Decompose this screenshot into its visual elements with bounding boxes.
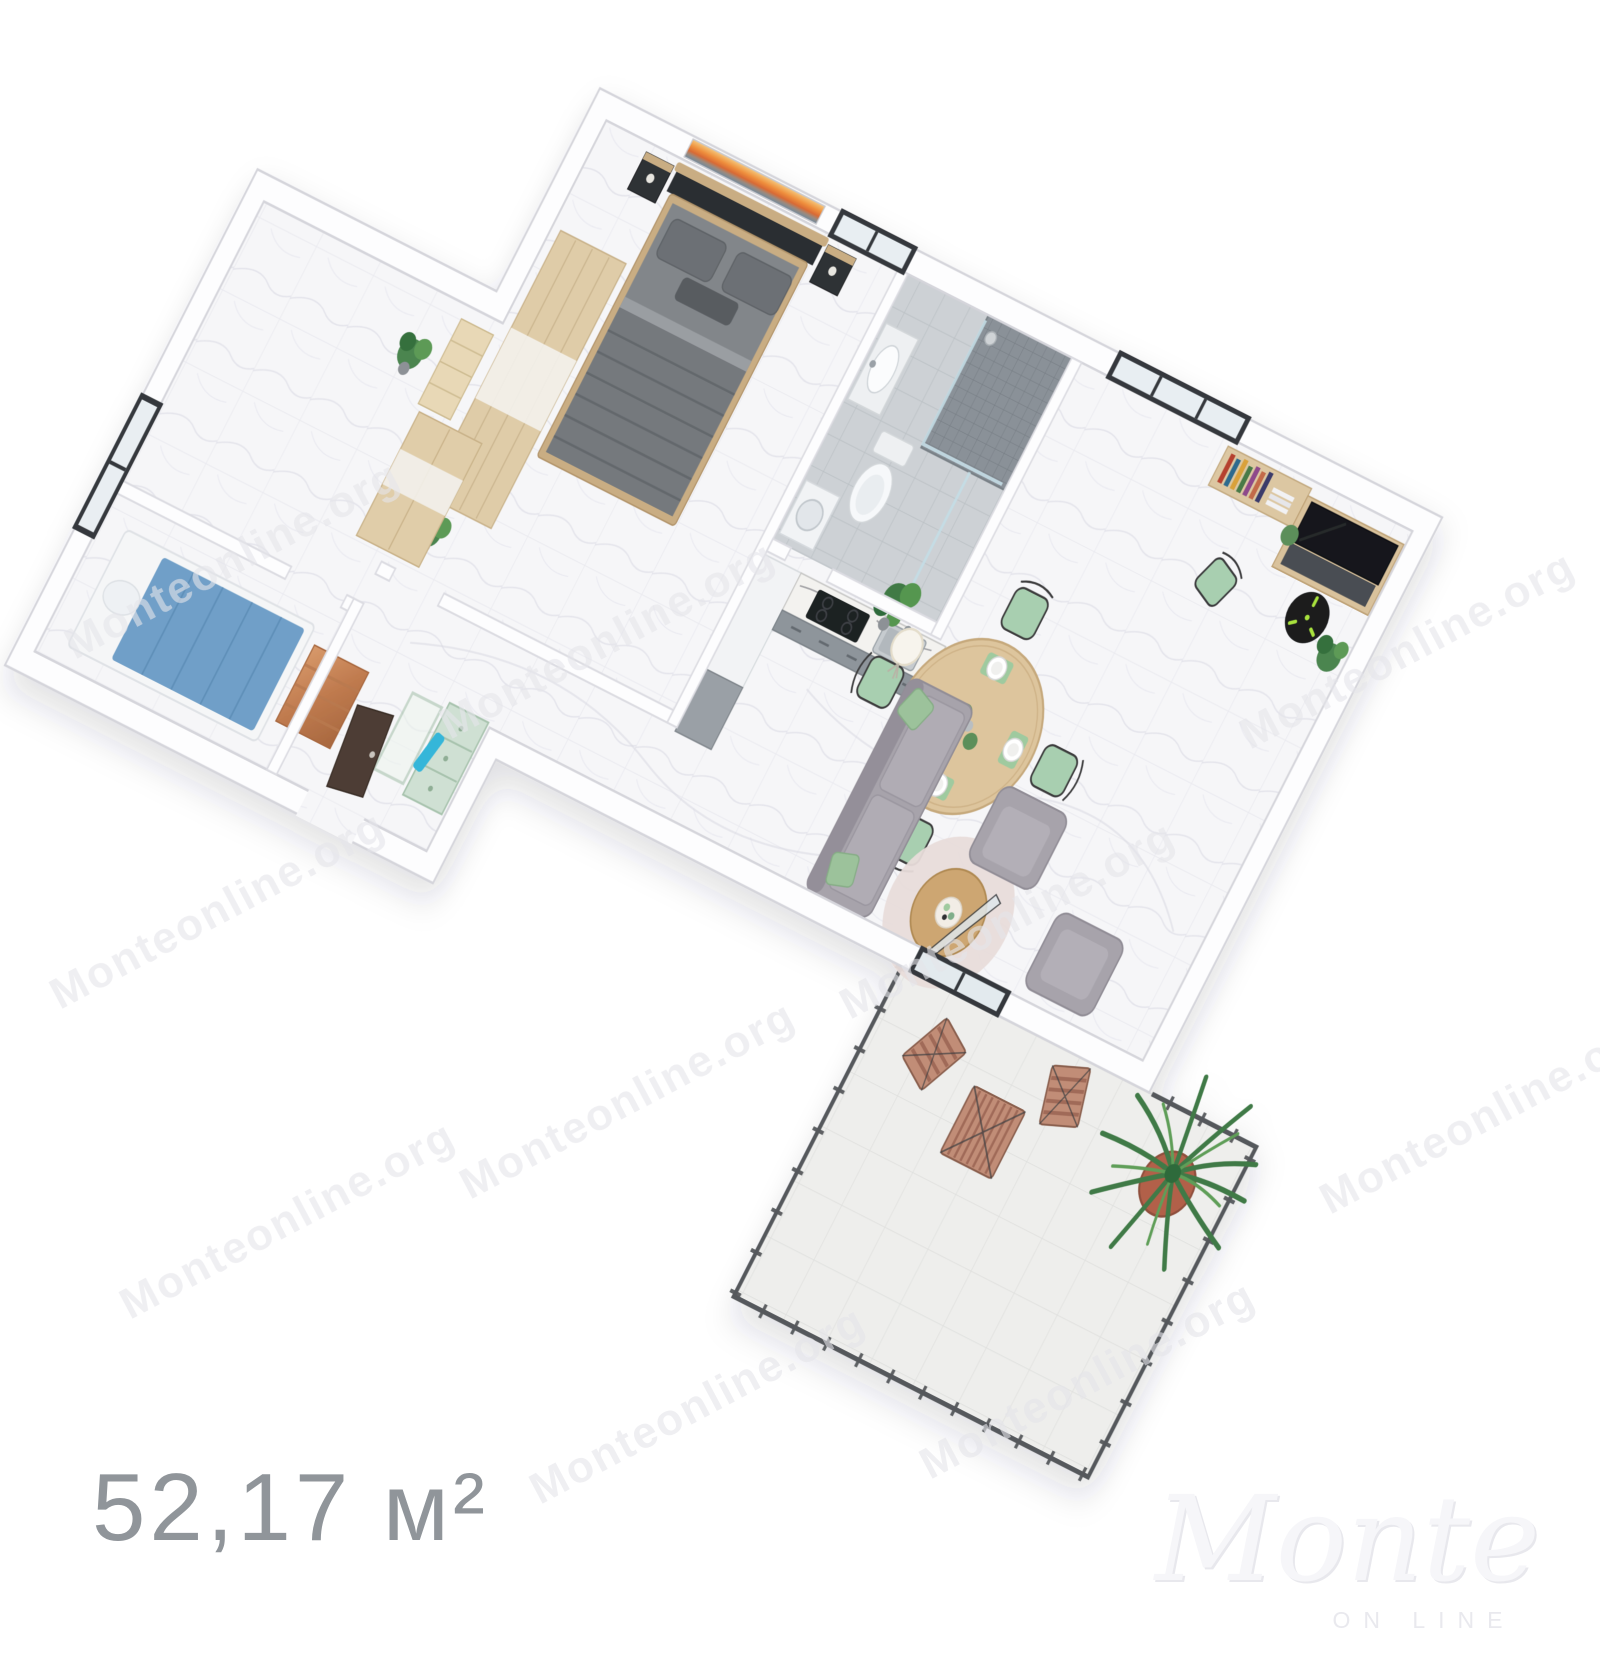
watermark-text: Monteonline.org xyxy=(42,801,394,1019)
floorplan-page: Monteonline.org Monteonline.org Monteonl… xyxy=(0,0,1600,1669)
watermark-text: Monteonline.org xyxy=(1312,1006,1600,1224)
area-label: 52,17 м² xyxy=(92,1454,489,1561)
watermark-text: Monteonline.org xyxy=(112,1111,464,1329)
watermark-text: Monteonline.org xyxy=(452,991,804,1209)
logo-script: Monte xyxy=(1153,1470,1540,1608)
logo-subtitle: ON LINE xyxy=(1332,1607,1515,1633)
floorplan-render: Monteonline.org Monteonline.org Monteonl… xyxy=(0,0,1600,1669)
brand-logo: Monte Monte ON LINE xyxy=(1153,1470,1542,1633)
watermark-text: Monteonline.org xyxy=(522,1296,874,1514)
